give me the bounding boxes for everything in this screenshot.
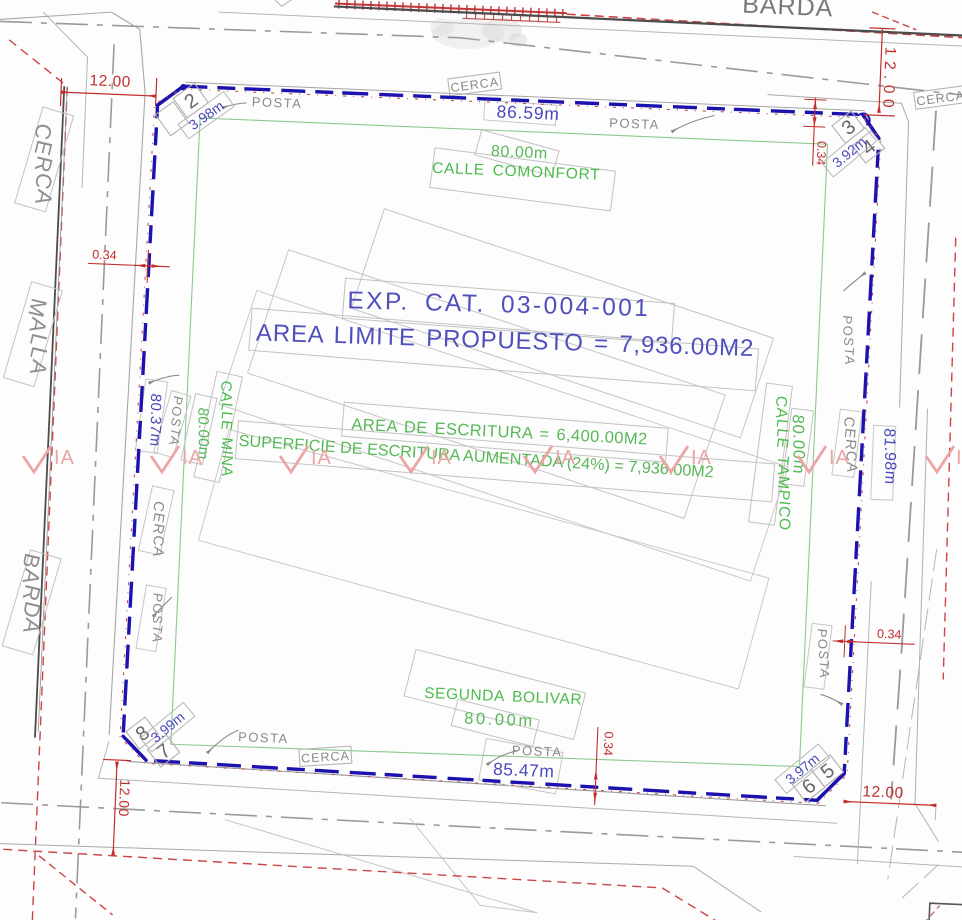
- svg-text:MALLA: MALLA: [23, 296, 53, 379]
- svg-text:81.98m: 81.98m: [879, 427, 899, 486]
- svg-text:POSTA: POSTA: [251, 94, 302, 111]
- svg-text:POSTA: POSTA: [609, 115, 660, 132]
- svg-text:0.34: 0.34: [877, 627, 902, 642]
- svg-text:0.34: 0.34: [814, 141, 829, 166]
- svg-text:BARDA: BARDA: [742, 0, 834, 22]
- svg-text:CALLE COMONFORT: CALLE COMONFORT: [432, 160, 601, 184]
- svg-text:EXP. CAT. 03-004-001: EXP. CAT. 03-004-001: [347, 287, 650, 322]
- svg-text:CERCA: CERCA: [149, 500, 167, 560]
- svg-text:IA: IA: [311, 447, 332, 469]
- svg-text:POSTA: POSTA: [813, 627, 833, 681]
- svg-text:12.00: 12.00: [862, 783, 904, 802]
- svg-text:POSTA: POSTA: [238, 729, 289, 746]
- svg-text:12.00: 12.00: [89, 72, 131, 91]
- svg-text:IA: IA: [431, 447, 452, 469]
- svg-text:POSTA: POSTA: [838, 314, 858, 368]
- svg-text:12.00: 12.00: [879, 46, 899, 113]
- svg-text:POSTA: POSTA: [512, 743, 563, 760]
- svg-text:CALLE MINA: CALLE MINA: [216, 379, 236, 478]
- svg-text:0.34: 0.34: [92, 248, 117, 263]
- svg-text:IA: IA: [54, 447, 75, 469]
- svg-text:85.47m: 85.47m: [493, 759, 555, 782]
- svg-text:AREA LIMITE PROPUESTO = 7,936.: AREA LIMITE PROPUESTO = 7,936.00M2: [256, 319, 755, 362]
- svg-text:IA: IA: [956, 447, 962, 469]
- svg-text:0.34: 0.34: [601, 731, 616, 756]
- svg-text:12.00: 12.00: [116, 779, 134, 817]
- svg-text:POSTA: POSTA: [149, 592, 166, 645]
- svg-text:IA: IA: [691, 447, 712, 469]
- svg-text:CERCA: CERCA: [29, 121, 58, 209]
- svg-text:IA: IA: [182, 447, 203, 469]
- svg-text:IA: IA: [829, 447, 850, 469]
- svg-text:SEGUNDA BOLIVAR: SEGUNDA BOLIVAR: [424, 685, 583, 709]
- svg-text:80.37m: 80.37m: [146, 393, 165, 448]
- svg-text:IA: IA: [555, 447, 576, 469]
- svg-text:80.00m: 80.00m: [464, 710, 535, 731]
- svg-text:80.00m: 80.00m: [491, 143, 549, 162]
- svg-text:86.59m: 86.59m: [496, 101, 560, 124]
- svg-text:BARDA: BARDA: [17, 551, 46, 638]
